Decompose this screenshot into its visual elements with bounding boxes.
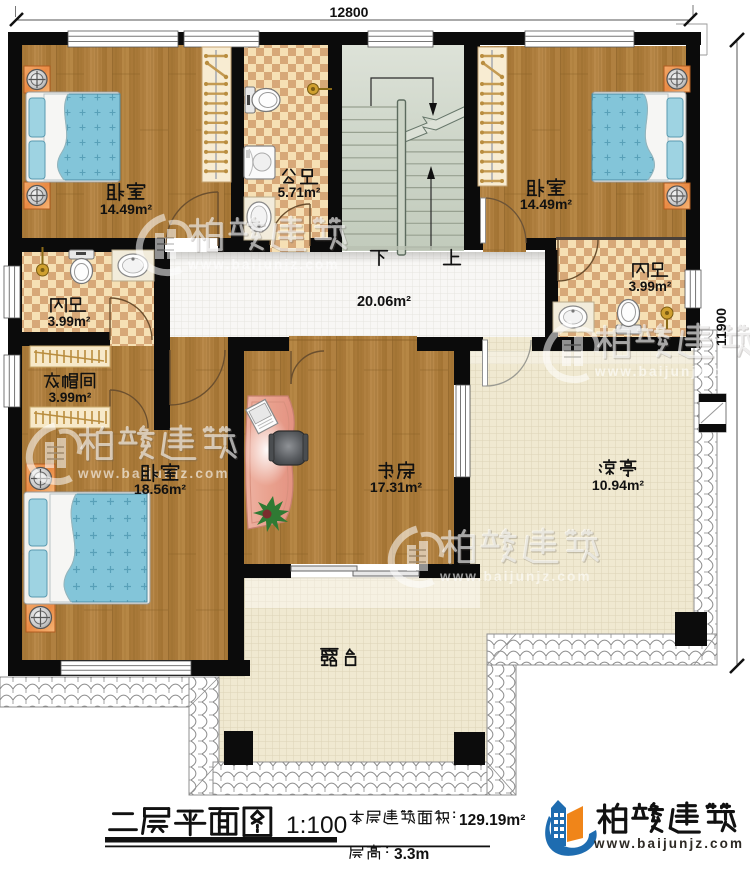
svg-text:14.49m²: 14.49m² xyxy=(100,201,152,217)
svg-text:3.99m²: 3.99m² xyxy=(629,279,672,294)
svg-text:10.94m²: 10.94m² xyxy=(592,477,644,493)
svg-text:www.baijunjz.com: www.baijunjz.com xyxy=(439,569,592,584)
svg-text:129.19m²: 129.19m² xyxy=(459,812,525,829)
svg-text:14.49m²: 14.49m² xyxy=(520,196,572,212)
svg-text:3.99m²: 3.99m² xyxy=(48,314,91,329)
svg-text::: : xyxy=(385,841,389,856)
svg-text::: : xyxy=(452,806,456,821)
svg-text:17.31m²: 17.31m² xyxy=(370,479,422,495)
svg-text:www.baijunjz.com: www.baijunjz.com xyxy=(187,257,340,272)
svg-text:3.3m: 3.3m xyxy=(394,846,429,863)
svg-text:18.56m²: 18.56m² xyxy=(134,481,186,497)
svg-text:5.71m²: 5.71m² xyxy=(278,185,321,200)
svg-text:www.baijunjz.com: www.baijunjz.com xyxy=(593,836,744,851)
svg-text:12800: 12800 xyxy=(330,4,369,20)
svg-text:www.baijunjz.com: www.baijunjz.com xyxy=(594,364,747,379)
svg-text:1:100: 1:100 xyxy=(286,812,347,839)
svg-text:3.99m²: 3.99m² xyxy=(49,390,92,405)
svg-text:11900: 11900 xyxy=(713,308,729,346)
svg-text:20.06m²: 20.06m² xyxy=(357,294,411,310)
